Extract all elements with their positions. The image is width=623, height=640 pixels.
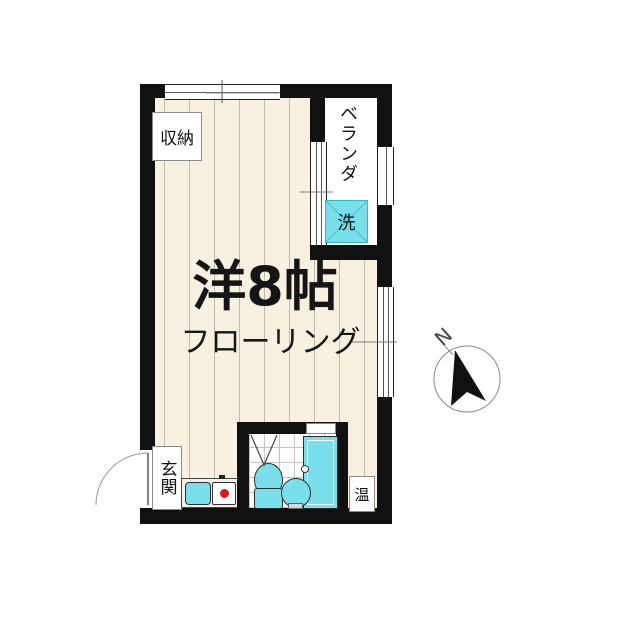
bathtub-knob-icon [301, 465, 309, 473]
flooring-label: フローリング [158, 328, 383, 358]
stove-burner-icon [220, 489, 229, 498]
compass-n-label: N [430, 323, 457, 351]
basin-stand [288, 503, 303, 509]
bathtub-inner-rim [307, 440, 334, 505]
room-size-label: 洋8帖 [150, 260, 380, 314]
entrance-label: 玄関 [155, 460, 180, 496]
storage-label: 収納 [160, 124, 194, 149]
toilet-tank [254, 488, 283, 509]
water-heater-box: 温 [349, 476, 375, 512]
entrance-label-box: 玄関 [152, 446, 182, 510]
room-window-glass-line-1 [383, 287, 384, 397]
stove-faucet-icon [219, 475, 225, 479]
sliding-door-line-1 [316, 142, 317, 245]
veranda-label: ベランダ [334, 104, 360, 199]
stove [212, 482, 236, 505]
bathroom-top-window [306, 423, 336, 434]
compass-icon: N [430, 323, 500, 412]
north-arrow-icon [451, 350, 486, 406]
floor-plan-canvas: 洗 ベランダ 収納 洋8帖 フローリング 玄関 温 [0, 0, 623, 640]
veranda-window [377, 147, 394, 205]
washer-box: 洗 [325, 200, 368, 243]
water-heater-label: 温 [354, 484, 369, 505]
sliding-door-line-2 [321, 142, 322, 245]
washer-label: 洗 [326, 201, 367, 242]
kitchen-sink [185, 482, 211, 505]
compass-n-pointer-line [444, 345, 453, 355]
top-window-glass-line [165, 92, 280, 93]
compass-circle [434, 346, 500, 412]
storage-label-box: 収納 [152, 112, 202, 161]
veranda-partition-wall [310, 98, 325, 142]
top-window [165, 84, 280, 100]
room-window-glass-line-2 [388, 287, 389, 397]
veranda-window-glass-line [386, 147, 387, 205]
